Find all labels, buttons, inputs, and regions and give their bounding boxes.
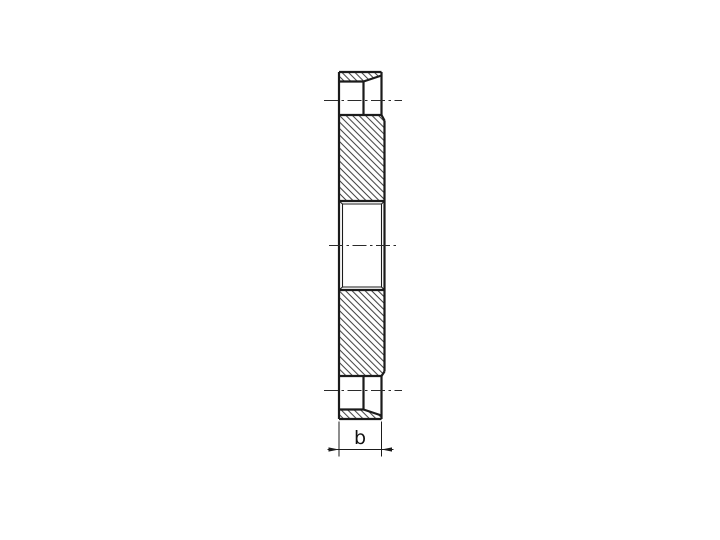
flange-section-drawing — [0, 0, 720, 540]
dim-arrow-right — [382, 447, 393, 451]
upper-flange-body-hatch — [339, 115, 385, 201]
dimension-label-b: b — [347, 428, 373, 449]
dim-arrow-left — [329, 447, 340, 451]
lower-flange-body-hatch — [339, 290, 385, 376]
drawing-canvas: b — [0, 0, 720, 540]
